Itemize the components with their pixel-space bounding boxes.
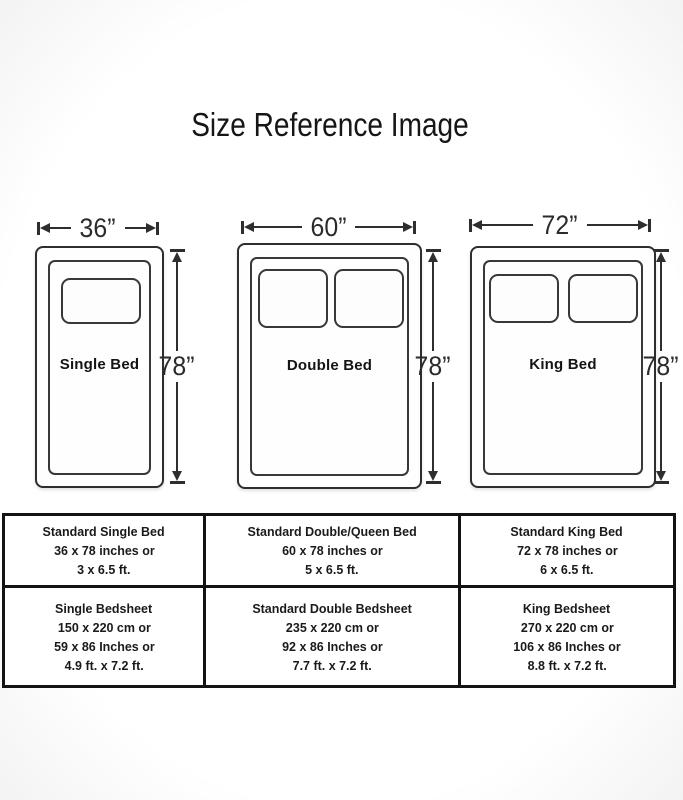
cell-line: 7.7 ft. x 7.2 ft. <box>292 656 371 675</box>
cell-line: Standard Double Bedsheet <box>252 599 411 618</box>
arrowhead-up-icon <box>172 252 182 262</box>
arrow-cap <box>648 219 651 232</box>
arrow-line <box>125 227 146 229</box>
arrowhead-up-icon <box>656 252 666 262</box>
single-bed-width-arrow: 36” <box>37 219 159 237</box>
size-table: Standard Single Bed 36 x 78 inches or 3 … <box>2 513 676 688</box>
arrowhead-right-icon <box>403 222 413 232</box>
single-bed-height-label: 78” <box>159 351 195 382</box>
king-bed-height-label: 78” <box>643 351 679 382</box>
double-bed-pillow-right <box>334 269 404 328</box>
arrow-cap <box>654 481 669 484</box>
single-bed-pillow <box>61 278 141 324</box>
cell-line: Standard Double/Queen Bed <box>247 522 416 541</box>
double-bed-width-label: 60” <box>304 214 353 241</box>
king-bed-label: King Bed <box>472 356 654 373</box>
single-bed-width-label: 36” <box>74 215 123 242</box>
double-bed-height-arrow: 78” <box>413 249 453 484</box>
table-cell-king-bedsheet: King Bedsheet 270 x 220 cm or 106 x 86 I… <box>461 588 673 685</box>
arrowhead-right-icon <box>638 220 648 230</box>
arrowhead-down-icon <box>428 471 438 481</box>
arrow-cap <box>426 481 441 484</box>
table-cell-single-bedsheet: Single Bedsheet 150 x 220 cm or 59 x 86 … <box>5 588 206 685</box>
cell-line: King Bedsheet <box>523 599 610 618</box>
cell-line: 3 x 6.5 ft. <box>77 560 130 579</box>
king-bed-width-label: 72” <box>536 212 585 239</box>
double-bed-outline: Double Bed <box>237 243 422 489</box>
table-cell-standard-king-bed: Standard King Bed 72 x 78 inches or 6 x … <box>461 516 673 588</box>
arrow-cap <box>413 221 416 234</box>
arrow-line <box>176 262 178 351</box>
arrow-line <box>660 262 662 351</box>
arrow-line <box>432 262 434 351</box>
cell-line: 150 x 220 cm or <box>57 618 150 637</box>
table-cell-standard-double-bedsheet: Standard Double Bedsheet 235 x 220 cm or… <box>206 588 461 685</box>
arrowhead-left-icon <box>472 220 482 230</box>
page-title: Size Reference Image <box>50 106 611 144</box>
cell-line: 36 x 78 inches or <box>54 541 155 560</box>
cell-line: 92 x 86 Inches or <box>282 637 383 656</box>
single-bed-height-arrow: 78” <box>157 249 197 484</box>
single-bed-outline: Single Bed <box>35 246 164 488</box>
arrow-line <box>587 224 638 226</box>
cell-line: 106 x 86 Inches or <box>513 637 621 656</box>
cell-line: Standard Single Bed <box>43 522 165 541</box>
arrow-cap <box>156 222 159 235</box>
single-bed-label: Single Bed <box>37 356 162 373</box>
double-bed-label: Double Bed <box>239 357 420 374</box>
king-bed-width-arrow: 72” <box>469 216 651 234</box>
cell-line: 4.9 ft. x 7.2 ft. <box>64 656 143 675</box>
arrow-cap <box>170 481 185 484</box>
arrowhead-up-icon <box>428 252 438 262</box>
cell-line: 235 x 220 cm or <box>285 618 378 637</box>
arrowhead-right-icon <box>146 223 156 233</box>
arrow-line <box>176 382 178 471</box>
arrowhead-down-icon <box>172 471 182 481</box>
king-bed-pillow-left <box>489 274 559 323</box>
cell-line: 270 x 220 cm or <box>520 618 613 637</box>
double-bed-height-label: 78” <box>415 351 451 382</box>
arrow-line <box>432 382 434 471</box>
table-cell-standard-single-bed: Standard Single Bed 36 x 78 inches or 3 … <box>5 516 206 588</box>
arrow-line <box>482 224 533 226</box>
cell-line: 8.8 ft. x 7.2 ft. <box>527 656 606 675</box>
king-bed-outline: King Bed <box>470 246 656 488</box>
size-reference-image: Size Reference Image 36” Single Bed 78” … <box>0 0 683 800</box>
cell-line: Single Bedsheet <box>55 599 152 618</box>
arrowhead-left-icon <box>244 222 254 232</box>
arrow-line <box>254 226 302 228</box>
double-bed-pillow-left <box>258 269 328 328</box>
cell-line: 5 x 6.5 ft. <box>305 560 358 579</box>
arrow-line <box>355 226 403 228</box>
cell-line: 72 x 78 inches or <box>517 541 618 560</box>
arrowhead-left-icon <box>40 223 50 233</box>
arrow-line <box>50 227 71 229</box>
double-bed-width-arrow: 60” <box>241 218 416 236</box>
cell-line: Standard King Bed <box>511 522 623 541</box>
arrow-line <box>660 382 662 471</box>
cell-line: 6 x 6.5 ft. <box>540 560 593 579</box>
arrowhead-down-icon <box>656 471 666 481</box>
king-bed-pillow-right <box>568 274 638 323</box>
table-cell-standard-double-queen-bed: Standard Double/Queen Bed 60 x 78 inches… <box>206 516 461 588</box>
king-bed-height-arrow: 78” <box>641 249 681 484</box>
cell-line: 59 x 86 Inches or <box>54 637 155 656</box>
cell-line: 60 x 78 inches or <box>282 541 383 560</box>
